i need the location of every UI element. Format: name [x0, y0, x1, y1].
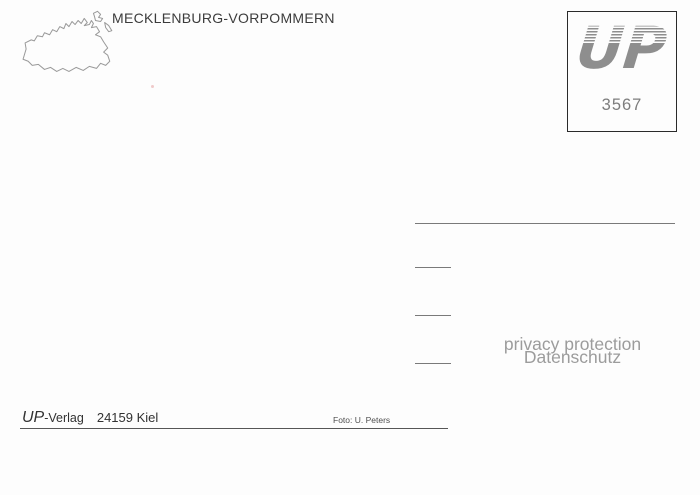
region-title: MECKLENBURG-VORPOMMERN [112, 10, 335, 26]
footer-rule-line [20, 428, 448, 429]
publisher-name: -Verlag [44, 411, 84, 425]
privacy-watermark-line-2: Datenschutz [455, 351, 690, 364]
stamp-box: UP 3567 [567, 11, 677, 132]
publisher-credit: UP-Verlag24159 Kiel [22, 409, 158, 427]
up-logo: UP [574, 16, 670, 72]
mecklenburg-vorpommern-map-icon [20, 9, 122, 85]
photo-credit: Foto: U. Peters [333, 415, 390, 425]
address-line-stub-2 [415, 315, 451, 316]
address-line-stub-3 [415, 363, 451, 364]
map-outline-icon [20, 9, 122, 85]
privacy-watermark: privacy protection Datenschutz [455, 338, 690, 363]
print-artifact-dot [151, 85, 154, 88]
address-line-stub-1 [415, 267, 451, 268]
address-divider-line [415, 223, 675, 224]
stamp-card-number: 3567 [568, 96, 676, 115]
publisher-logo-text: UP [22, 409, 44, 426]
postcard-back: MECKLENBURG-VORPOMMERN UP [0, 0, 700, 495]
publisher-location: 24159 Kiel [97, 410, 158, 425]
